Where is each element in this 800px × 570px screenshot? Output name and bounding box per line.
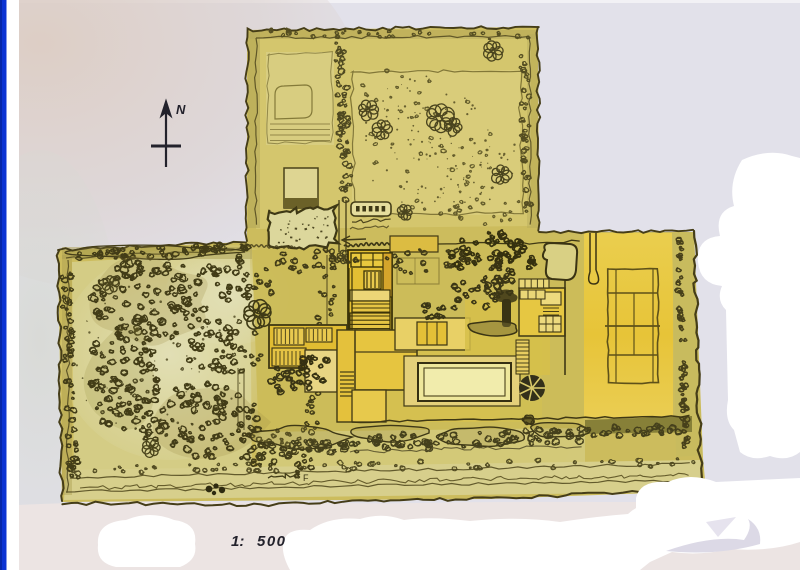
svg-text:1:: 1: bbox=[231, 533, 244, 550]
svg-text:500: 500 bbox=[257, 533, 287, 550]
svg-text:N: N bbox=[176, 102, 186, 117]
svg-text:F: F bbox=[303, 473, 309, 483]
